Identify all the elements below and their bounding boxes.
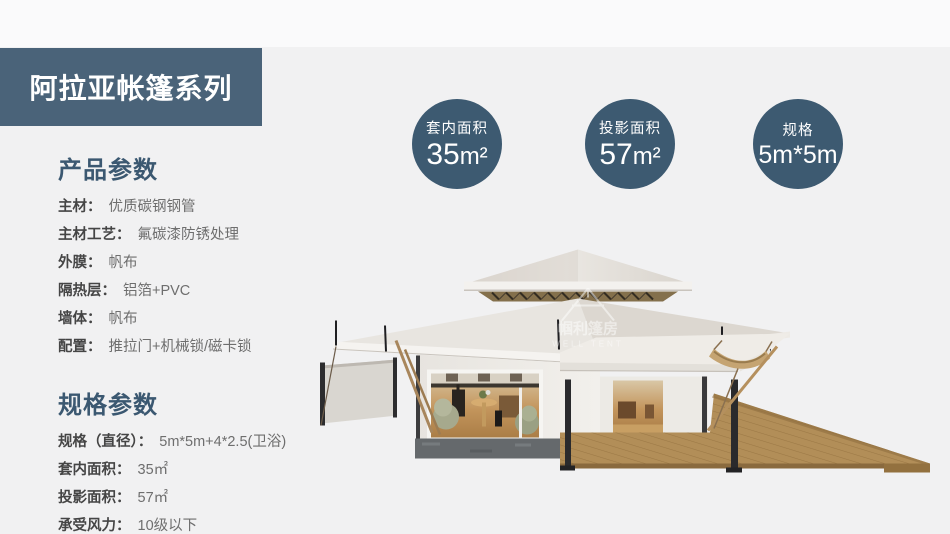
tent-illustration: 帼利篷房 WELL TENT xyxy=(300,225,950,525)
spec-value: 铝箔+PVC xyxy=(123,279,190,300)
badge-size: 规格 5m*5m xyxy=(753,99,843,189)
spec-label: 配置： xyxy=(58,335,102,356)
badge-interior-area: 套内面积 35m² xyxy=(412,99,502,189)
spec-row: 主材： 优质碳钢钢管 xyxy=(58,195,378,223)
spec-label: 主材工艺： xyxy=(58,223,131,244)
spec-value: 帆布 xyxy=(109,251,138,272)
stone-base xyxy=(415,439,562,459)
spec-label: 墙体： xyxy=(58,307,102,328)
spec-label: 承受风力： xyxy=(58,514,131,534)
watermark-cn: 帼利篷房 xyxy=(558,320,618,338)
roof-top-tier xyxy=(464,250,692,302)
spec-value: 35㎡ xyxy=(138,458,169,479)
side-screen xyxy=(320,347,397,426)
spec-value: 10级以下 xyxy=(138,514,198,534)
tent-render: 帼利篷房 WELL TENT xyxy=(300,225,950,525)
title-banner: 阿拉亚帐篷系列 xyxy=(0,48,262,126)
spec-value: 推拉门+机械锁/磁卡锁 xyxy=(109,335,252,356)
badge-value: 5m*5m xyxy=(758,142,837,169)
page-title: 阿拉亚帐篷系列 xyxy=(29,67,232,107)
badge-value: 57m² xyxy=(599,140,660,172)
panoramic-window xyxy=(429,372,541,440)
badge-value: 35m² xyxy=(426,140,487,172)
watermark-en: WELL TENT xyxy=(552,340,623,349)
spec-label: 主材： xyxy=(58,195,102,216)
interior-figure xyxy=(495,411,502,427)
top-strip xyxy=(0,0,950,47)
badge-label: 投影面积 xyxy=(599,117,661,138)
badge-projection-area: 投影面积 57m² xyxy=(585,99,675,189)
spec-value: 57㎡ xyxy=(138,486,169,507)
spec-label: 规格（直径）： xyxy=(58,430,152,451)
spec-label: 隔热层： xyxy=(58,279,116,300)
interior-cabinet xyxy=(499,396,521,418)
badge-label: 规格 xyxy=(783,119,814,140)
spec-value: 优质碳钢钢管 xyxy=(109,195,196,216)
spec-label: 套内面积： xyxy=(58,458,131,479)
badge-label: 套内面积 xyxy=(426,117,488,138)
spec-value: 帆布 xyxy=(109,307,138,328)
product-params-heading: 产品参数 xyxy=(58,150,378,185)
spec-poster-page: 阿拉亚帐篷系列 产品参数 主材： 优质碳钢钢管 主材工艺： 氟碳漆防锈处理 外膜… xyxy=(0,0,950,534)
spec-label: 投影面积： xyxy=(58,486,131,507)
spec-value: 5m*5m+4*2.5(卫浴) xyxy=(159,430,286,451)
spec-value: 氟碳漆防锈处理 xyxy=(138,223,240,244)
porch-wall xyxy=(600,377,708,433)
spec-label: 外膜： xyxy=(58,251,102,272)
